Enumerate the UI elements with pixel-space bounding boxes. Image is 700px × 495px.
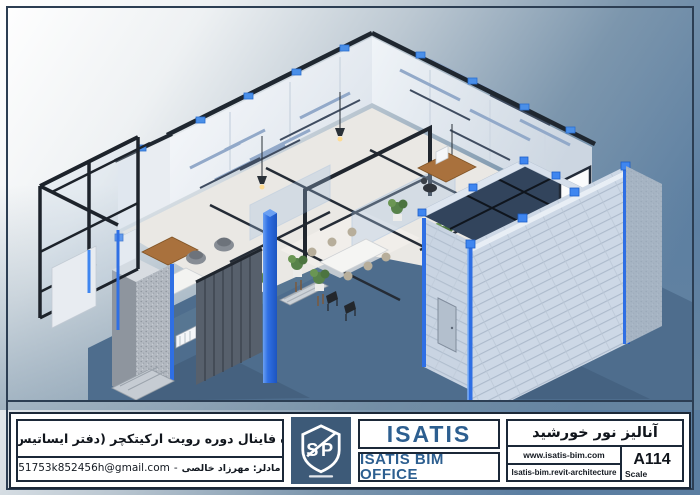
company-subtitle-cell: ISATIS BIM OFFICE	[358, 452, 500, 482]
modeler-row: بیم مادلر: مهرزاد خالصی - m951753k852456…	[18, 458, 282, 478]
blue-mullion-column	[263, 209, 277, 383]
modeler-name: بیم مادلر: مهرزاد خالصی	[182, 463, 282, 474]
company-logo: SP	[291, 417, 351, 484]
company-subtitle: ISATIS BIM OFFICE	[360, 452, 498, 482]
sheet-number: A114	[633, 451, 670, 469]
masonry-wall-sw	[424, 218, 470, 390]
drawing-title: آنالیز نور خورشید	[508, 421, 682, 447]
company-website: www.isatis-bim.com	[508, 447, 620, 465]
company-name: ISATIS	[387, 423, 471, 446]
company-box: ISATIS ISATIS BIM OFFICE	[358, 419, 500, 482]
project-title: پروژه فاینال دوره رویت ارکیتکچر (دفتر ای…	[18, 421, 282, 458]
logo-tagline-bar	[309, 475, 333, 477]
masonry-wall-side	[626, 166, 662, 344]
sheet-number-cell: A114 Scale	[620, 447, 682, 480]
project-info-box: پروژه فاینال دوره رویت ارکیتکچر (دفتر ای…	[16, 419, 284, 482]
title-block: پروژه فاینال دوره رویت ارکیتکچر (دفتر ای…	[9, 412, 691, 489]
logo-letters: SP	[306, 440, 335, 460]
company-name-cell: ISATIS	[358, 419, 500, 449]
drawing-info-box: آنالیز نور خورشید www.isatis-bim.com Isa…	[506, 419, 684, 482]
shield-logo-icon: SP	[295, 421, 347, 481]
scale-label: Scale	[625, 469, 647, 479]
modeler-email: m951753k852456h@gmail.com	[18, 462, 170, 474]
course-id: Isatis-bim.revit-architecture	[508, 465, 620, 481]
separator-dash: -	[174, 462, 178, 474]
web-column: www.isatis-bim.com Isatis-bim.revit-arch…	[508, 447, 620, 480]
drawing-sheet: پروژه فاینال دوره رویت ارکیتکچر (دفتر ای…	[0, 0, 700, 495]
